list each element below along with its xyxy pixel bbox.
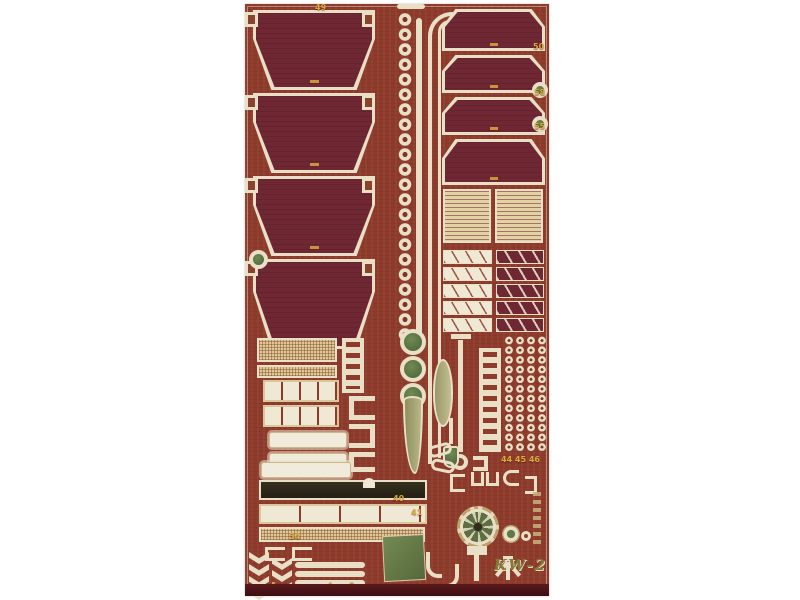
c-clamp-part <box>503 470 519 486</box>
ladder-strip-part <box>479 348 501 452</box>
plate-part <box>261 462 351 478</box>
meander-bracket-part <box>349 424 375 448</box>
product-photo: KW-2 49505855404144 45 4654149 <box>0 0 800 600</box>
attachment-tab <box>362 12 375 27</box>
eyelet-ring-part <box>532 116 548 132</box>
top-sprue-tab <box>397 4 425 9</box>
photo-etch-fret: KW-2 49505855404144 45 4654149 <box>245 4 549 596</box>
segmented-panel-part <box>263 405 339 427</box>
leaf-spring-chevron <box>272 570 292 582</box>
cutout-hole-green <box>382 534 426 582</box>
attachment-tab <box>245 95 258 110</box>
u-bracket-part <box>486 472 499 486</box>
hook-part <box>426 552 442 578</box>
louver-grille-part <box>495 189 543 243</box>
bracket-part <box>450 474 465 492</box>
tool-handle-top <box>451 334 471 339</box>
fender-panel <box>253 259 375 349</box>
meander-bracket-part <box>349 452 375 472</box>
pod-shaped-part <box>433 359 453 427</box>
diagonal-strap-part <box>496 301 544 315</box>
leaf-spring-chevron <box>249 564 269 576</box>
fender-panel <box>253 93 375 173</box>
attachment-tab <box>362 95 375 110</box>
etched-serial-marks <box>533 492 541 548</box>
plate-part <box>269 432 347 448</box>
mudflap-panel <box>442 97 545 135</box>
diagonal-strap-part <box>496 267 544 281</box>
attachment-tab <box>362 178 375 193</box>
segmented-long-bar-part <box>259 504 427 524</box>
meander-bracket-part <box>349 396 375 420</box>
diagonal-strap-part <box>443 267 492 281</box>
bracket-part <box>292 547 312 561</box>
attachment-tab <box>245 178 258 193</box>
thin-strip-part <box>295 562 365 568</box>
drilled-hole-green <box>400 356 426 382</box>
segmented-panel-part <box>263 380 339 402</box>
fret-title-etched: KW-2 <box>483 556 547 574</box>
diagonal-strap-part <box>443 301 492 315</box>
attachment-tab <box>245 12 258 27</box>
eyelet-ring-part <box>532 82 548 98</box>
washer-part <box>502 525 520 543</box>
eyelet-grid-parts <box>504 336 548 452</box>
mudflap-panel <box>442 9 545 51</box>
mudflap-panel <box>442 55 545 93</box>
part-number: 44 45 46 <box>501 455 540 464</box>
attachment-tab <box>362 261 375 276</box>
thin-strip-part <box>295 571 365 577</box>
mesh-grille-part <box>257 338 337 362</box>
long-strip-part <box>416 18 422 336</box>
diagonal-strap-part <box>443 284 492 298</box>
diagonal-strap-part <box>496 250 544 264</box>
ladder-strip-part <box>342 338 364 393</box>
dark-slot-bar-part <box>259 480 427 500</box>
mudflap-panel <box>442 139 545 185</box>
fender-panel <box>253 10 375 90</box>
louver-grille-part <box>443 189 491 243</box>
hammer-handle <box>474 555 479 581</box>
fret-bottom-edge <box>245 584 549 596</box>
small-ring-part <box>521 531 531 541</box>
diagonal-strap-part <box>443 318 492 332</box>
mesh-grille-part <box>257 365 337 378</box>
diagonal-strap-part <box>496 284 544 298</box>
u-bracket-part <box>471 472 484 486</box>
dome-rivet-part <box>363 478 375 488</box>
fender-panel <box>253 176 375 256</box>
spoked-wheel-part <box>457 506 499 548</box>
blade-part <box>403 396 423 474</box>
tool-shaft <box>458 340 463 452</box>
shovel-shaft <box>449 418 453 444</box>
diagonal-strap-part <box>496 318 544 332</box>
hammer-head <box>467 546 487 555</box>
drilled-hole-green <box>249 250 268 269</box>
l-bracket-part <box>473 456 488 471</box>
diagonal-strap-part <box>443 250 492 264</box>
ring-chain-parts <box>397 12 413 342</box>
drilled-hole-green <box>400 329 426 355</box>
